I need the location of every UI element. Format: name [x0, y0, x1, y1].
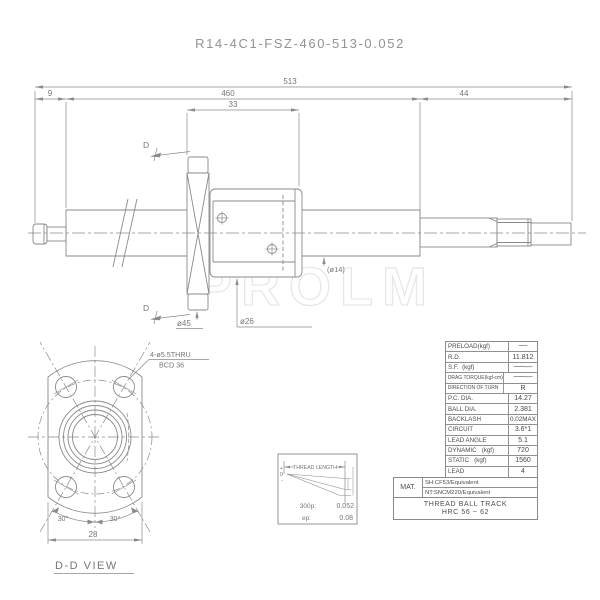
chart-row1-label: 300p: [300, 503, 316, 510]
deviation-lines [287, 474, 345, 496]
axis-minus: - [281, 478, 283, 484]
spec-label: P.C. DIA. [446, 394, 509, 403]
spec-value: 11.812 [509, 352, 537, 361]
spec-label: PRELOAD(kgf) [446, 342, 509, 351]
table-row: P.C. DIA. 14.27 [446, 394, 537, 404]
callout-line1: 4-ø5.5THRU [150, 350, 191, 359]
spec-label: BACKLASH [446, 415, 509, 424]
dimension-lines [35, 87, 572, 110]
table-row: CIRCUIT 3.6*1 [446, 425, 537, 435]
drawing-sheet: PROLM R14-4C1-FSZ-460-513-0.052 [0, 0, 600, 600]
spec-label: STATIC (kgf) [446, 456, 509, 465]
spec-value: 0.02MAX [509, 415, 537, 424]
table-row: LEAD 4 [446, 467, 537, 477]
table-row: BACKLASH 0.02MAX [446, 415, 537, 425]
section-marker-top: D [143, 140, 190, 161]
spec-value: ~ [509, 342, 537, 351]
material-nut: NT:SNCM220/Equivalent [423, 488, 537, 497]
spec-label: DRAG TORQUE(kgf-cm) [446, 373, 504, 382]
spec-value: 5.1 [509, 436, 537, 445]
extension-lines [35, 91, 572, 223]
spec-label: CIRCUIT [446, 425, 509, 434]
dim-left-end: 9 [48, 89, 53, 98]
table-row: DYNAMIC (kgf) 720 [446, 446, 537, 456]
angle-left: 30° [58, 514, 69, 523]
section-letter: D [143, 140, 149, 150]
spec-value: R [509, 384, 537, 393]
section-letter: D [143, 303, 149, 313]
spec-label: LEAD ANGLE [446, 436, 509, 445]
spec-label: LEAD [446, 467, 509, 477]
spec-label: DIRECTION OF TURN [446, 384, 504, 393]
chart-row1-value: 0.052 [336, 503, 354, 510]
width-dim-text: 28 [89, 530, 98, 539]
spec-value: 2.381 [509, 404, 537, 413]
end-journal [531, 223, 571, 245]
dd-view-title: D-D VIEW [54, 560, 134, 574]
spec-label: R.D. [446, 352, 509, 361]
label-nut-dia: ø26 [240, 317, 254, 326]
spec-label: DYNAMIC (kgf) [446, 446, 509, 455]
spec-value: 720 [509, 446, 537, 455]
material-shaft: SH:CF53/Equivalent [423, 478, 537, 488]
main-view: 513 9 460 44 33 [28, 77, 586, 329]
dimension-arrows [35, 85, 572, 111]
angle-right: 30° [110, 514, 121, 523]
chart-row2-label: ep: [302, 515, 311, 522]
dimension-texts: 513 9 460 44 33 [48, 77, 469, 109]
spec-value: 4 [509, 467, 537, 477]
spec-value: ~ [509, 363, 537, 372]
table-row: STATIC (kgf) 1560 [446, 456, 537, 466]
right-journal [420, 218, 571, 247]
lead-accuracy-chart: THREAD LENGTH + 0 - 300p: 0.052 ep: [278, 454, 357, 524]
hardness-line1: THREAD BALL TRACK [394, 501, 537, 508]
thread-section [497, 219, 531, 246]
spec-value: 14.27 [509, 394, 537, 403]
dim-overall: 513 [283, 77, 297, 86]
tolerance-brackets [340, 467, 353, 496]
flange [187, 157, 209, 310]
spec-table: PRELOAD(kgf) ~ R.D. 11.812 S.F. (kgf) ~ … [445, 341, 538, 478]
spec-value: 1560 [509, 456, 537, 465]
spec-label: BALL DIA. [446, 404, 509, 413]
dd-view: 4-ø5.5THRU BCD 36 30° 30° 28 [28, 342, 209, 574]
spec-value: 3.6*1 [509, 425, 537, 434]
label-flange-dia: ø45 [177, 319, 191, 328]
table-row: R.D. 11.812 [446, 352, 537, 362]
hardness-line2: HRC 56 ~ 62 [394, 509, 537, 516]
table-row: PRELOAD(kgf) ~ [446, 342, 537, 352]
hardness-block: THREAD BALL TRACK HRC 56 ~ 62 [393, 497, 538, 520]
spec-value: ~ [509, 373, 537, 382]
chart-row2-value: 0.08 [339, 515, 353, 522]
label-screw-dia: (ø14) [327, 265, 345, 274]
table-row: LEAD ANGLE 5.1 [446, 436, 537, 446]
page-title: R14-4C1-FSZ-460-513-0.052 [0, 36, 600, 51]
spec-label: S.F. (kgf) [446, 363, 509, 372]
left-journal [33, 224, 66, 244]
material-label: MAT. [394, 478, 423, 497]
table-row: BALL DIA. 2.381 [446, 404, 537, 414]
table-row: S.F. (kgf) ~ [446, 363, 537, 373]
material-block: MAT. SH:CF53/Equivalent NT:SNCM220/Equiv… [393, 477, 538, 498]
table-row: DRAG TORQUE(kgf-cm) ~ [446, 373, 537, 383]
dim-thread: 460 [221, 89, 235, 98]
chart-title: THREAD LENGTH [293, 465, 337, 471]
callout-line2: BCD 36 [159, 361, 184, 370]
dim-right-end: 44 [460, 89, 469, 98]
table-row: DIRECTION OF TURN R [446, 384, 537, 394]
dim-nut: 33 [229, 100, 238, 109]
view-title-text: D-D VIEW [55, 560, 118, 572]
